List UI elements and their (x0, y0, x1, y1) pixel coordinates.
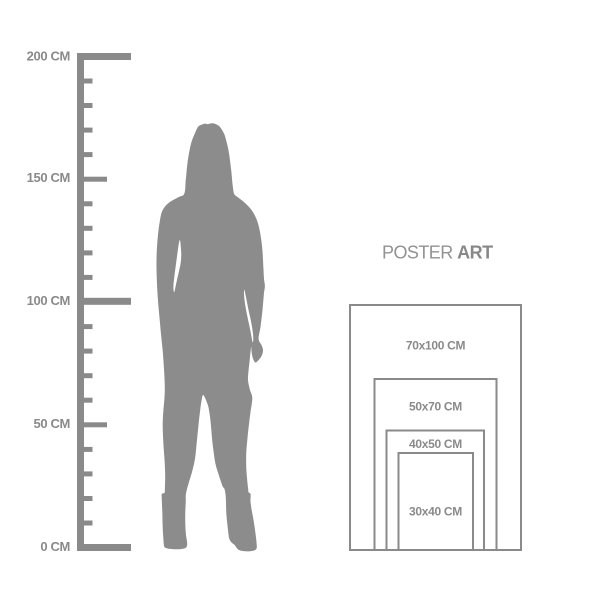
svg-text:50 CM: 50 CM (33, 416, 70, 431)
svg-text:150 CM: 150 CM (27, 170, 70, 185)
svg-text:40x50 CM: 40x50 CM (409, 437, 462, 451)
svg-text:50x70 CM: 50x70 CM (409, 399, 462, 413)
svg-text:30x40 CM: 30x40 CM (409, 504, 462, 518)
svg-text:200 CM: 200 CM (27, 49, 70, 64)
svg-text:POSTER ART: POSTER ART (382, 243, 493, 263)
svg-text:70x100 CM: 70x100 CM (406, 339, 466, 353)
svg-text:0 CM: 0 CM (40, 539, 70, 554)
svg-text:100 CM: 100 CM (27, 293, 70, 308)
